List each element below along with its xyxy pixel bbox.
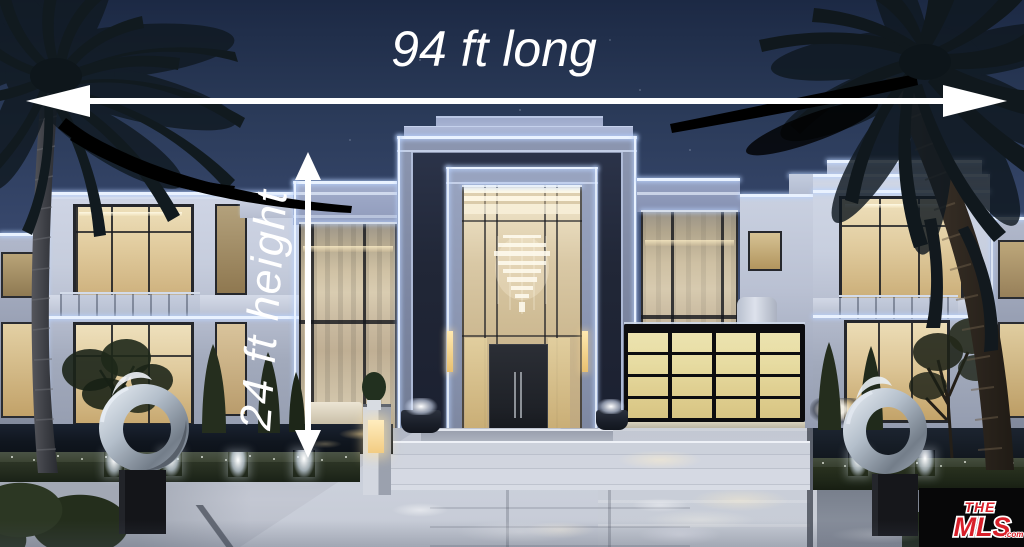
svg-text:MLS: MLS <box>954 512 1011 542</box>
svg-text:.com: .com <box>1005 530 1024 539</box>
svg-text:24 ft height: 24 ft height <box>231 187 297 433</box>
svg-text:94 ft long: 94 ft long <box>391 21 597 77</box>
